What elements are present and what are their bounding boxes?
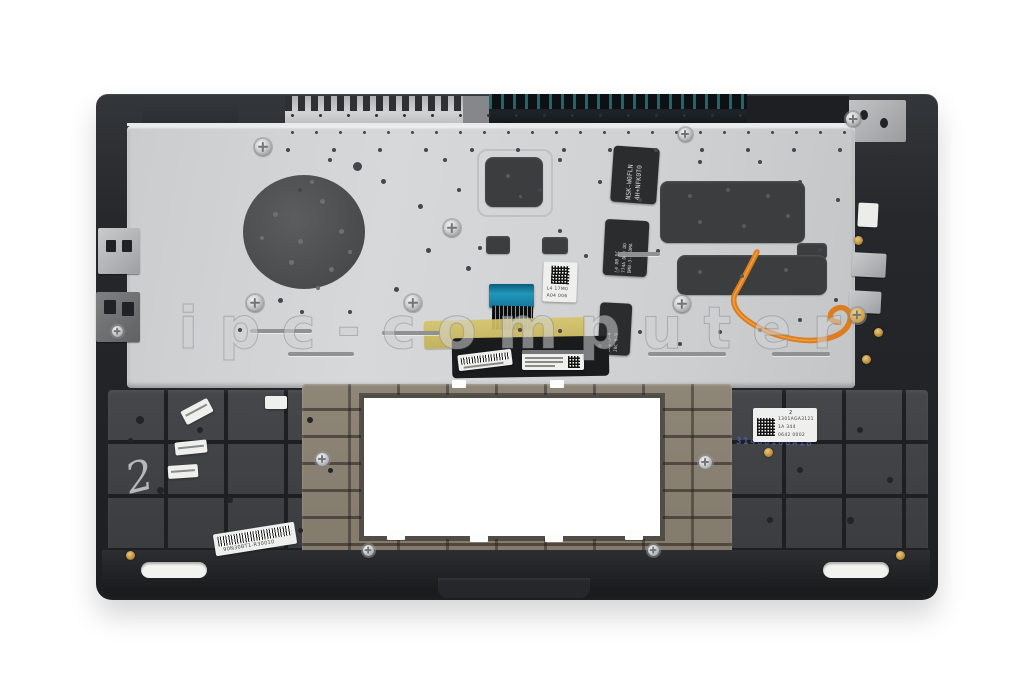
rivet-hole [487, 114, 490, 117]
rivet-hole [558, 329, 562, 333]
rivet-hole [838, 148, 842, 152]
part-number-text: DMB-3-1 DMA [629, 223, 637, 273]
insulation-pad-upper-right [660, 181, 805, 243]
touchpad-clip-tab [387, 530, 405, 540]
rivet-hole [339, 131, 342, 134]
rivet-hole [328, 158, 332, 162]
small-pad-left [486, 236, 510, 254]
rivet-hole [608, 148, 612, 152]
rivet-hole [273, 212, 278, 217]
label-text: 1301AGA3121 [778, 417, 814, 422]
rivet-hole [836, 198, 840, 202]
rivet-hole [798, 318, 802, 322]
label-text: 2 [789, 410, 792, 416]
label-sticker-strip-right [522, 350, 584, 370]
phillips-screw [679, 128, 692, 141]
small-pad-right [542, 237, 568, 254]
embossed-slot [382, 331, 440, 335]
rivet-hole [784, 268, 788, 272]
small-sticker [168, 464, 199, 479]
rivet-hole [298, 239, 303, 244]
rivet-hole [786, 214, 790, 218]
bottom-center-tab [438, 578, 590, 598]
round-adhesive-pad [243, 175, 365, 289]
embossed-slot [250, 329, 312, 333]
rivet-hole [300, 310, 304, 314]
rivet-hole [483, 131, 486, 134]
rivet-hole [627, 114, 630, 117]
rivet-hole [289, 260, 294, 265]
rivet-hole [435, 131, 438, 134]
rivet-hole [562, 148, 566, 152]
rivet-hole [403, 114, 406, 117]
rivet-hole [347, 114, 350, 117]
label-text: 0642 0002 [778, 433, 805, 438]
rivet-hole [654, 148, 658, 152]
rivet-hole [543, 114, 546, 117]
touchpad-clip-tab [470, 532, 488, 542]
rivet-hole [651, 131, 654, 134]
rivet-hole [332, 148, 336, 152]
rivet-hole [278, 298, 283, 303]
rivet-hole [571, 114, 574, 117]
rivet-hole [443, 158, 447, 162]
rivet-hole [316, 286, 320, 290]
rivet-hole [411, 131, 414, 134]
rivet-hole [767, 517, 773, 523]
rivet-hole [381, 179, 386, 184]
keyboard-part-label-2: L4 DB DC 774A DDB DD DMB-3-1 DMA [603, 219, 650, 277]
rivet-hole [320, 199, 325, 204]
part-number-text: J8C 6-9 [615, 306, 622, 352]
touchpad-clip-tab [625, 530, 643, 540]
rivet-hole [740, 274, 744, 278]
rivet-hole [843, 131, 846, 134]
square-insulation-pad [485, 157, 543, 207]
rivet-hole [328, 468, 333, 473]
rivet-hole [518, 328, 522, 332]
touchpad-clip-tab [452, 380, 466, 388]
keyboard-part-label-1: NSK-W0FLN 4H+NFK0T0 [610, 145, 660, 204]
phillips-screw [363, 545, 374, 556]
rivet-hole [538, 188, 542, 192]
qr-code [551, 266, 570, 285]
rivet-hole [424, 148, 428, 152]
phillips-screw [405, 295, 421, 311]
qr-code [757, 418, 775, 436]
rivet-hole [315, 131, 318, 134]
rivet-hole [579, 131, 582, 134]
rivet-hole [746, 148, 750, 152]
rivet-hole [238, 328, 242, 332]
brass-screw-insert [764, 448, 773, 457]
rivet-hole [136, 416, 144, 424]
brass-screw-insert [862, 355, 871, 364]
rivet-hole [834, 298, 838, 302]
touchpad-clip-tab [550, 380, 564, 388]
rivet-hole [197, 427, 203, 433]
serration-teeth [489, 94, 747, 109]
rivet-hole [847, 517, 854, 524]
sticker-text: L4 17M0 [547, 287, 569, 293]
rivet-hole [286, 148, 290, 152]
rivet-hole [387, 131, 390, 134]
phillips-screw [112, 326, 123, 337]
rivet-hole [128, 438, 133, 443]
rivet-hole [678, 342, 682, 346]
rivet-hole [291, 131, 294, 134]
rivet-hole [470, 148, 474, 152]
rivet-hole [319, 114, 322, 117]
rivet-hole [699, 131, 702, 134]
rivet-hole [363, 131, 366, 134]
rivet-hole [603, 131, 606, 134]
rivet-hole [353, 162, 362, 171]
keyboard-ribbon-cable [489, 284, 534, 308]
rivet-hole [584, 254, 588, 258]
rivet-hole [742, 224, 746, 228]
rivet-hole [157, 487, 164, 494]
rivet-hole [700, 148, 704, 152]
rivet-hole [739, 114, 742, 117]
phillips-screw [648, 545, 659, 556]
rivet-hole [698, 160, 702, 164]
rivet-hole [260, 236, 264, 240]
rivet-hole [683, 114, 686, 117]
rivet-hole [339, 229, 344, 234]
rivet-hole [857, 427, 863, 433]
part-number-text: 4H+NFK0T0 [634, 150, 645, 200]
brass-screw-insert [896, 551, 905, 560]
rivet-hole [711, 114, 714, 117]
rivet-hole [506, 174, 510, 178]
bracket-hole [880, 118, 888, 128]
phillips-screw [699, 456, 712, 469]
rivet-hole [638, 330, 642, 334]
rubber-foot-slot-left [141, 562, 207, 578]
rivet-hole [698, 220, 702, 224]
rivet-hole [478, 246, 482, 250]
rivet-hole [310, 180, 314, 184]
rivet-hole [307, 417, 313, 423]
side-port-opening [857, 202, 878, 227]
brass-screw-insert [854, 236, 863, 245]
serration-teeth [285, 96, 463, 111]
phillips-screw [850, 308, 865, 323]
rivet-hole [718, 330, 722, 334]
product-photo-laptop-palmrest: NSK-W0FLN 4H+NFK0T0 L4 DB DC 774A DDB DD… [0, 0, 1024, 680]
rivet-hole [431, 114, 434, 117]
rivet-hole [378, 148, 382, 152]
rivet-hole [726, 188, 730, 192]
rivet-hole [329, 267, 334, 272]
bracket-hole [860, 110, 868, 120]
rivet-hole [516, 148, 520, 152]
rivet-hole [723, 131, 726, 134]
embossed-slot [648, 352, 726, 356]
rivet-hole [394, 287, 399, 292]
hinge-vent-strip-left [285, 96, 463, 126]
rivet-hole [375, 114, 378, 117]
rivet-hole [638, 198, 642, 202]
hinge-strip-gap [463, 96, 489, 126]
phillips-screw [846, 112, 860, 126]
rivet-hole [598, 180, 602, 184]
brass-screw-insert [874, 328, 883, 337]
touchpad-cutout [364, 398, 660, 536]
left-edge-bracket-upper [98, 228, 140, 274]
phillips-screw [247, 295, 263, 311]
rivet-hole [298, 188, 302, 192]
rivet-hole [507, 131, 510, 134]
rivet-hole [227, 497, 233, 503]
embossed-slot [772, 352, 830, 356]
rivet-hole [598, 344, 602, 348]
phillips-screw [255, 139, 271, 155]
rivet-hole [758, 160, 762, 164]
rivet-hole [555, 131, 558, 134]
rivet-hole [655, 114, 658, 117]
rivet-hole [747, 131, 750, 134]
rivet-hole [688, 194, 692, 198]
rivet-hole [348, 310, 352, 314]
rivet-hole [459, 114, 462, 117]
qr-code [568, 356, 580, 368]
rivet-hole [698, 270, 702, 274]
rivet-hole [426, 248, 431, 253]
brass-screw-insert [126, 551, 135, 560]
rivet-hole [758, 328, 762, 332]
rivet-hole [795, 131, 798, 134]
phillips-screw [316, 453, 329, 466]
foil-shield-tab [851, 252, 886, 278]
rivet-hole [459, 131, 462, 134]
rivet-hole [291, 114, 294, 117]
embossed-slot [618, 252, 660, 256]
rivet-hole [599, 114, 602, 117]
sticker-text: A04 006 [546, 294, 567, 300]
label-text: 1A 344 [778, 425, 796, 430]
rivet-hole [348, 250, 352, 254]
rivet-hole [797, 467, 803, 473]
rivet-hole [558, 229, 562, 233]
touchpad-clip-tab [545, 532, 563, 542]
small-sticker [265, 396, 287, 409]
rivet-hole [515, 114, 518, 117]
rivet-hole [675, 131, 678, 134]
qr-sticker-center: L4 17M0 A04 006 [542, 261, 577, 302]
rivet-hole [457, 188, 461, 192]
rivet-hole [298, 528, 303, 533]
embossed-slot [288, 352, 354, 356]
rivet-hole [616, 269, 620, 273]
phillips-screw [674, 296, 690, 312]
rivet-hole [531, 131, 534, 134]
insulation-pad-lower-right [677, 255, 827, 295]
hinge-vent-strip-right [489, 94, 747, 125]
info-label-right: 2 1301AGA3121 1A 344 0642 0002 [753, 408, 817, 442]
phillips-screw [444, 220, 460, 236]
rivet-hole [558, 158, 562, 162]
rivet-hole [418, 204, 423, 209]
rubber-foot-slot-right [823, 562, 889, 578]
rivet-hole [766, 194, 770, 198]
rivet-hole [792, 148, 796, 152]
rivet-hole [519, 195, 522, 198]
rivet-hole [819, 131, 822, 134]
rivet-hole [466, 266, 471, 271]
rivet-hole [818, 248, 822, 252]
rivet-hole [798, 180, 802, 184]
rivet-hole [771, 131, 774, 134]
rivet-hole [627, 131, 630, 134]
rivet-hole [887, 477, 893, 483]
